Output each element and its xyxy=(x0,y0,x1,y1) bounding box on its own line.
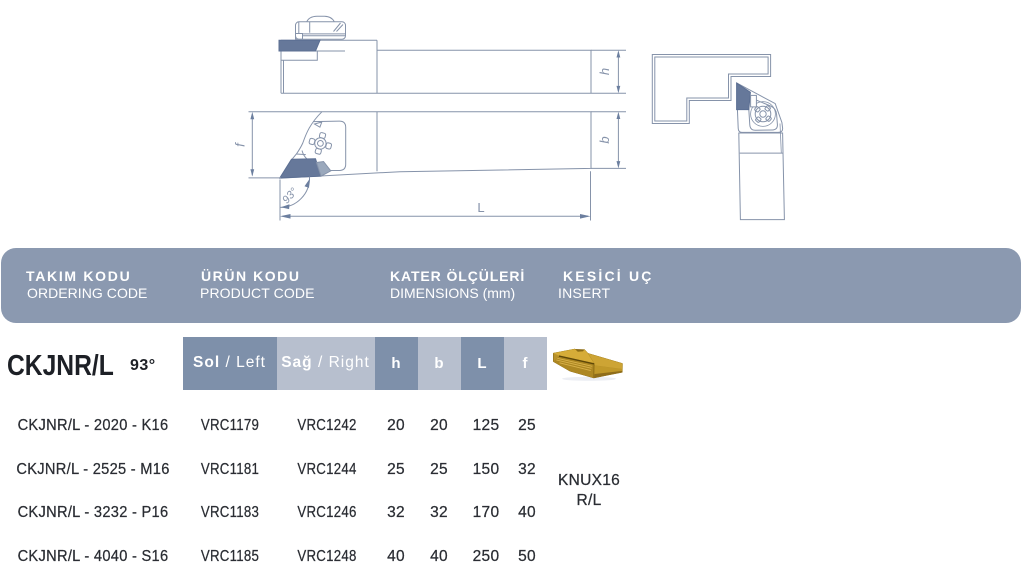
svg-text:h: h xyxy=(597,68,612,75)
svg-text:93°: 93° xyxy=(280,185,300,206)
svg-text:L: L xyxy=(477,200,484,215)
svg-text:b: b xyxy=(597,136,612,143)
svg-text:f: f xyxy=(233,142,248,147)
